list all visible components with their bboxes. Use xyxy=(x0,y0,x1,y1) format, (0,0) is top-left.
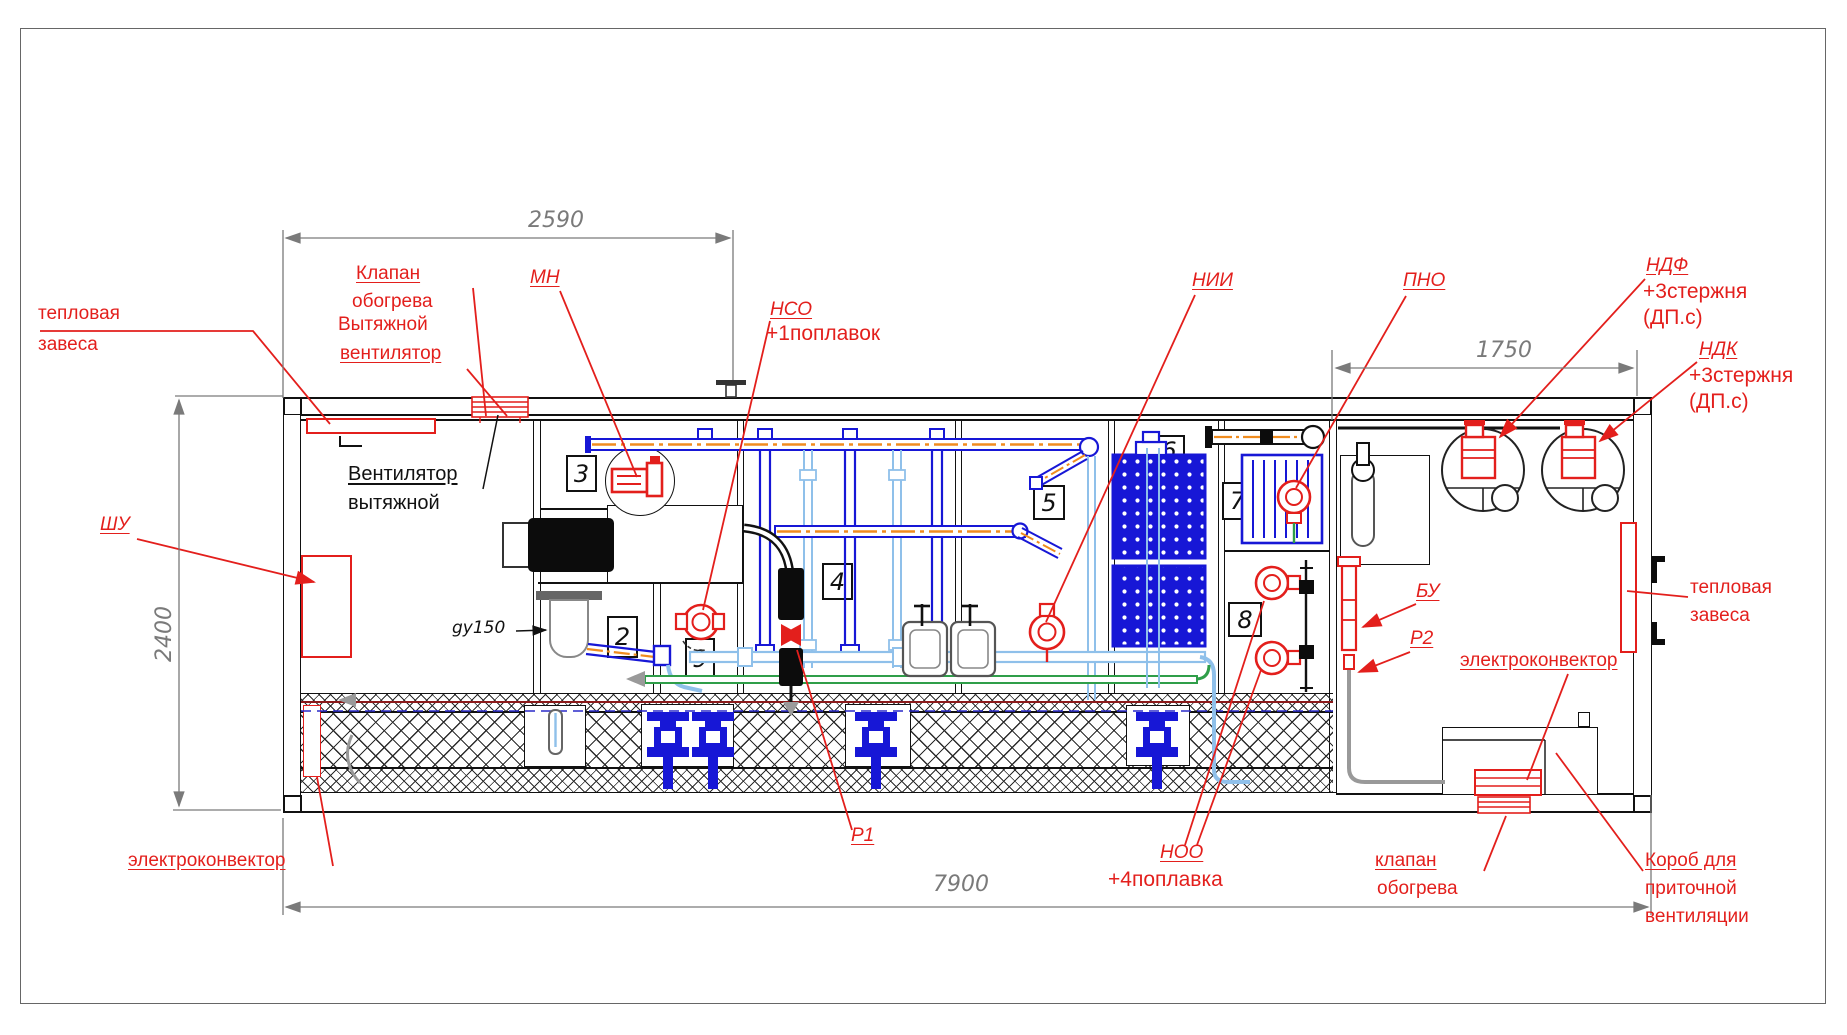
label-gy150: gy150 xyxy=(452,618,505,638)
label-exhaust-fan-red-2: вентилятор xyxy=(340,344,441,365)
mn-pump-circle xyxy=(605,446,675,516)
supply-vent-duct-box xyxy=(1442,727,1598,795)
floor-pit-3 xyxy=(845,704,911,767)
floor-pit-2 xyxy=(641,704,734,767)
label-heating-valve-bottom-2: обогрева xyxy=(1377,879,1458,900)
label-supply-duct-3: вентиляции xyxy=(1645,907,1749,928)
label-ndf: НДФ xyxy=(1646,256,1688,277)
label-electroconvector-left: электроконвектор xyxy=(128,851,285,872)
bottom-rail xyxy=(283,811,1652,813)
filter-gy150 xyxy=(549,599,589,658)
label-ndk: НДК xyxy=(1699,340,1737,361)
label-heat-curtain-right-1: тепловая xyxy=(1690,578,1772,599)
dim-7900: 7900 xyxy=(933,872,989,897)
item-box-5: 5 xyxy=(1033,485,1065,520)
item-box-3: 3 xyxy=(566,455,597,492)
label-supply-duct-1: Короб для xyxy=(1645,851,1736,872)
item-box-2: 2 xyxy=(607,616,638,658)
label-p2: Р2 xyxy=(1410,629,1433,650)
floor-pit-4 xyxy=(1126,705,1190,766)
dim-1750: 1750 xyxy=(1476,338,1532,363)
floor-pit-1 xyxy=(524,705,586,767)
item-box-8: 8 xyxy=(1228,602,1262,637)
duct-stub xyxy=(1578,712,1590,727)
floor-band-bottom xyxy=(301,768,1333,793)
blower-panel-box xyxy=(607,505,743,583)
item-box-9: 9 xyxy=(685,638,715,680)
control-cabinet-shu xyxy=(301,555,352,658)
label-ndk-note2: (ДП.с) xyxy=(1689,390,1749,413)
dim-2400: 2400 xyxy=(152,606,177,662)
label-heating-valve-bottom-1: клапан xyxy=(1375,851,1437,872)
label-heat-curtain-right-2: завеса xyxy=(1690,606,1750,627)
label-bu: БУ xyxy=(1416,582,1439,603)
partition-4 xyxy=(955,420,962,694)
label-heating-valve-top-1: Клапан xyxy=(356,264,420,285)
label-ndk-note1: +3стержня xyxy=(1689,364,1793,387)
blower-unit xyxy=(528,518,614,572)
roof xyxy=(283,397,1652,416)
item-box-7: 7 xyxy=(1222,482,1253,520)
left-wall xyxy=(283,414,301,797)
heat-curtain-left-unit xyxy=(306,418,436,434)
divider-7-8 xyxy=(1225,550,1329,552)
heat-curtain-right-unit xyxy=(1620,522,1637,653)
label-ndf-note1: +3стержня xyxy=(1643,280,1747,303)
label-exhaust-fan-red-1: Вытяжной xyxy=(338,315,428,336)
label-heat-curtain-left-2: завеса xyxy=(38,335,98,356)
right-room-cabinet xyxy=(1340,455,1430,565)
electroconvector-left-unit xyxy=(303,705,321,777)
label-heat-curtain-left-1: тепловая xyxy=(38,304,120,325)
drawing-canvas: 3 2 9 4 5 6 7 8 xyxy=(0,0,1847,1035)
label-exhaust-fan-black-2: вытяжной xyxy=(348,492,440,514)
label-supply-duct-2: приточной xyxy=(1645,879,1737,900)
item-box-6: 6 xyxy=(1153,435,1185,467)
partition-5 xyxy=(1108,420,1115,694)
label-nso: НСО xyxy=(770,300,812,321)
label-heating-valve-top-2: обогрева xyxy=(352,292,433,313)
label-mn: МН xyxy=(530,268,560,289)
label-shu: ШУ xyxy=(100,515,130,536)
ceiling-line xyxy=(301,419,1634,421)
label-nii: НИИ xyxy=(1192,271,1233,292)
label-electroconvector-right: электроконвектор xyxy=(1460,651,1617,672)
label-noo: НОО xyxy=(1160,843,1203,864)
label-pno: ПНО xyxy=(1403,271,1445,292)
label-noo-note: +4поплавка xyxy=(1108,868,1223,891)
label-p1: Р1 xyxy=(851,826,874,847)
label-ndf-note2: (ДП.с) xyxy=(1643,306,1703,329)
item-box-4: 4 xyxy=(822,563,853,600)
partition-6 xyxy=(1218,420,1225,694)
label-exhaust-fan-black-1: Вентилятор xyxy=(348,463,458,485)
label-nso-note: +1поплавок xyxy=(766,322,880,345)
dim-2590: 2590 xyxy=(528,208,584,233)
